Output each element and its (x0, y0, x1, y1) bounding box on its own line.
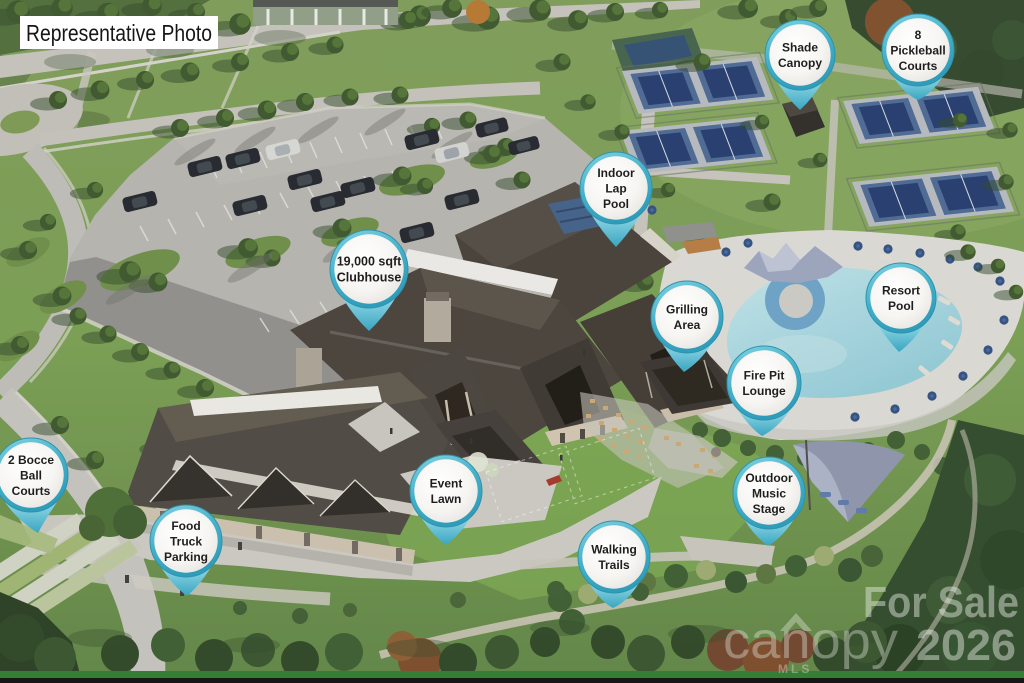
svg-text:Pickleball: Pickleball (890, 43, 945, 57)
svg-text:Ball: Ball (20, 468, 42, 482)
svg-text:Representative Photo: Representative Photo (26, 20, 212, 46)
svg-text:Truck: Truck (170, 534, 202, 548)
svg-text:Indoor: Indoor (597, 166, 635, 180)
svg-text:Food: Food (171, 519, 200, 533)
svg-text:Lap: Lap (605, 181, 626, 195)
svg-text:Area: Area (674, 318, 701, 332)
svg-text:Canopy: Canopy (778, 56, 822, 70)
svg-text:Pool: Pool (603, 197, 629, 211)
svg-text:Trails: Trails (598, 558, 630, 572)
svg-text:Outdoor: Outdoor (745, 471, 793, 485)
svg-text:Event: Event (430, 477, 463, 491)
svg-text:8: 8 (915, 28, 922, 42)
svg-text:19,000 sqft: 19,000 sqft (337, 255, 402, 269)
svg-text:Stage: Stage (753, 502, 786, 516)
svg-text:Resort: Resort (882, 284, 920, 298)
svg-text:Music: Music (752, 486, 786, 500)
svg-text:Grilling: Grilling (666, 303, 708, 317)
svg-text:Pool: Pool (888, 299, 914, 313)
svg-text:Lounge: Lounge (742, 384, 786, 398)
svg-text:Shade: Shade (782, 41, 818, 55)
svg-text:Clubhouse: Clubhouse (337, 271, 402, 285)
svg-text:2 Bocce: 2 Bocce (8, 453, 54, 467)
svg-text:Courts: Courts (899, 59, 938, 73)
svg-text:Courts: Courts (12, 484, 51, 498)
svg-text:Walking: Walking (591, 543, 637, 557)
svg-text:Fire Pit: Fire Pit (744, 369, 785, 383)
svg-text:Lawn: Lawn (431, 492, 462, 506)
svg-text:Parking: Parking (164, 550, 208, 564)
